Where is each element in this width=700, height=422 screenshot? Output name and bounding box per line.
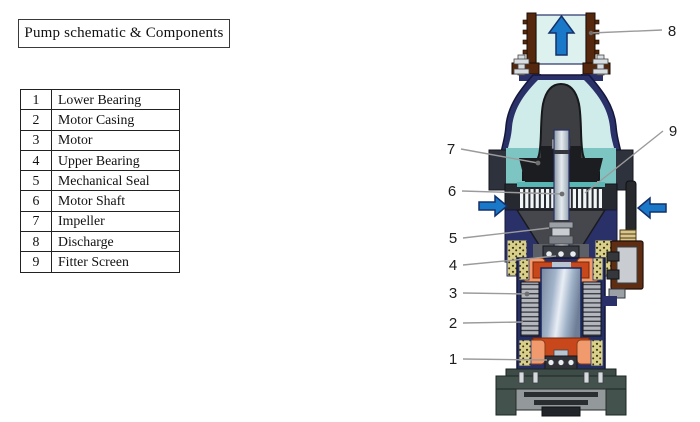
inlet-left-arrow-icon <box>479 196 507 216</box>
callout-fitter-screen: 9 <box>669 123 677 140</box>
callout-upper-bearing: 4 <box>449 257 457 274</box>
callout-impeller: 7 <box>447 141 455 158</box>
discharge-pipe <box>523 13 599 64</box>
pump-schematic-page: Pump schematic & Components 1Lower Beari… <box>0 0 700 422</box>
stator-fins <box>583 282 601 336</box>
callout-motor: 3 <box>449 285 457 302</box>
callout-motor-casing: 2 <box>449 315 457 332</box>
callout-discharge: 8 <box>668 23 676 40</box>
mechanical-seal <box>549 222 573 244</box>
power-cable <box>626 181 636 233</box>
motor-assembly <box>517 258 605 370</box>
callout-lower-bearing: 1 <box>449 351 457 368</box>
pump-cross-section-diagram: 1 2 3 4 5 6 7 8 9 <box>0 0 700 422</box>
callout-mechanical-seal: 5 <box>449 230 457 247</box>
stator-fins <box>521 282 539 336</box>
callout-motor-shaft: 6 <box>448 183 456 200</box>
inlet-right-arrow-icon <box>638 198 666 218</box>
lower-bearing <box>545 356 577 369</box>
pump-base <box>496 369 626 416</box>
